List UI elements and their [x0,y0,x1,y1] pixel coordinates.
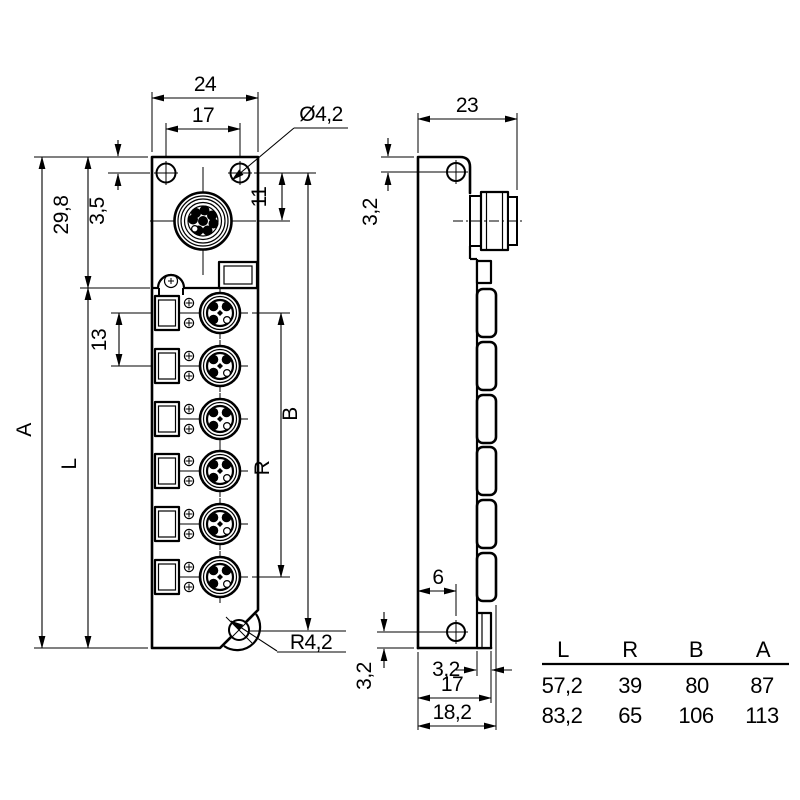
table-cell: 39 [618,673,642,698]
table-cell: 87 [750,673,774,698]
dim-label-body-height: L [58,458,81,469]
dim-body-height: L [58,288,88,648]
m8-bumps-side [477,289,496,601]
table-cell: 113 [745,703,779,728]
dimension-table: L R B A 57,2 39 80 87 83,2 65 106 113 [542,637,789,728]
side-hole-top [444,160,468,184]
table-header-l: L [557,637,569,662]
side-hole-bottom [444,620,468,644]
m12-connector-side [453,192,525,250]
dim-label-depth: 23 [456,94,478,117]
dim-label-port-span: R [251,460,274,475]
label-window-side [477,261,491,283]
dim-depth: 23 [418,94,517,190]
dim-top-hole-offset: 3,2 [359,138,447,226]
table-header-r: R [622,637,637,662]
front-view: 24 17 Ø4,2 3,5 29,8 [13,73,348,654]
table-row: 83,2 65 106 113 [542,703,779,728]
dim-hole-span: B [250,173,346,631]
table-cell: 106 [678,703,713,728]
table-cell: 83,2 [542,703,583,728]
dim-label-head-height: 29,8 [50,196,73,235]
dim-hole-spacing: 17 [166,104,240,158]
side-flange-outline [418,157,470,648]
technical-drawing: 24 17 Ø4,2 3,5 29,8 [0,0,800,800]
dim-label-total-height: A [13,423,36,437]
dim-label-bottom-hole-offset: 3,2 [353,662,376,690]
table-cell: 65 [618,703,642,728]
table-cell: 80 [685,673,709,698]
dim-label-width: 24 [194,73,217,96]
dim-label-m12-offset: 11 [248,187,271,208]
dim-label-body-depth: 17 [441,673,463,696]
dim-label-hole-span: B [279,407,302,421]
dim-label-hole-top-offset: 3,5 [86,197,109,225]
side-view: 23 3,2 6 3,2 3 [353,94,525,730]
dim-label-port-pitch: 13 [88,329,111,351]
dim-bottom-hole-inset: 6 [418,566,456,616]
table-row: 57,2 39 80 87 [542,673,774,698]
dim-label-hole-diameter: Ø4,2 [299,103,343,126]
dim-label-corner-radius: R4,2 [290,631,332,654]
label-window [219,262,257,288]
dim-body-depth: 17 [418,673,491,698]
dim-label-bottom-hole-inset: 6 [432,566,443,589]
dim-label-total-depth: 18,2 [433,701,472,724]
dim-total-height: A [13,157,148,648]
dim-label-hole-spacing: 17 [192,104,214,127]
table-header-a: A [756,637,771,662]
bottom-foot-side [477,613,491,648]
dim-hole-top-offset: 3,5 [86,140,150,225]
table-header-b: B [689,637,703,662]
dim-bottom-hole-offset: 3,2 [353,612,444,690]
dim-label-top-hole-offset: 3,2 [359,198,382,226]
table-cell: 57,2 [542,673,583,698]
dim-port-pitch: 13 [88,313,152,366]
